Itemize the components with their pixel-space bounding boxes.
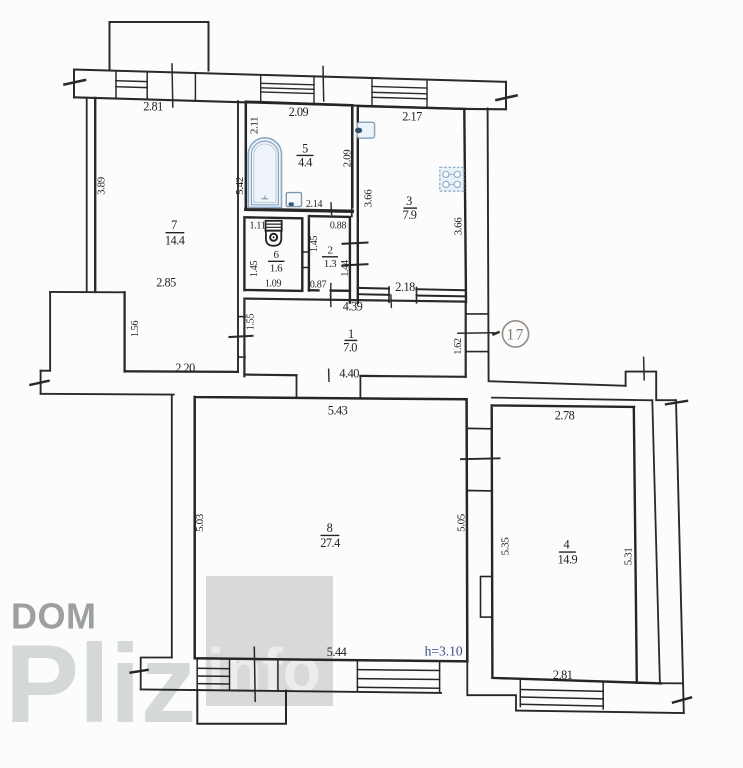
svg-text:14.4: 14.4 — [165, 233, 185, 247]
svg-text:4: 4 — [563, 538, 569, 552]
svg-text:7: 7 — [171, 218, 177, 232]
svg-text:14.9: 14.9 — [558, 553, 578, 567]
svg-text:3.66: 3.66 — [453, 217, 465, 236]
svg-text:4.4: 4.4 — [298, 156, 312, 170]
svg-text:2.17: 2.17 — [402, 109, 422, 123]
svg-text:1.44: 1.44 — [340, 260, 351, 277]
svg-text:7.0: 7.0 — [343, 340, 357, 354]
svg-text:5.42: 5.42 — [234, 177, 246, 195]
svg-text:0.87: 0.87 — [310, 280, 327, 291]
svg-text:0.88: 0.88 — [330, 220, 347, 231]
svg-text:2.09: 2.09 — [341, 149, 353, 168]
svg-text:1.45: 1.45 — [249, 261, 260, 278]
svg-text:6: 6 — [273, 249, 279, 261]
svg-text:3.66: 3.66 — [362, 189, 374, 208]
svg-text:h=3.10: h=3.10 — [425, 643, 463, 658]
svg-text:8: 8 — [327, 521, 333, 535]
svg-text:3.89: 3.89 — [95, 176, 107, 195]
svg-text:1.11: 1.11 — [250, 221, 266, 232]
svg-text:2.18: 2.18 — [395, 280, 415, 294]
svg-text:5.31: 5.31 — [623, 548, 635, 566]
svg-text:2.20: 2.20 — [175, 361, 195, 375]
svg-text:5.43: 5.43 — [328, 403, 348, 417]
svg-text:2: 2 — [327, 244, 332, 256]
svg-text:5.05: 5.05 — [456, 513, 468, 532]
svg-text:4.39: 4.39 — [343, 299, 363, 313]
svg-text:1.55: 1.55 — [245, 314, 256, 331]
svg-text:1.6: 1.6 — [270, 262, 283, 274]
svg-text:4.40: 4.40 — [339, 367, 359, 381]
svg-text:1.3: 1.3 — [324, 258, 337, 270]
svg-text:DOM: DOM — [11, 596, 97, 637]
svg-text:2.09: 2.09 — [289, 105, 309, 119]
svg-text:2.81: 2.81 — [553, 668, 573, 682]
svg-text:Pliz: Pliz — [5, 622, 196, 746]
svg-text:5: 5 — [302, 142, 308, 156]
svg-text:info: info — [207, 637, 321, 706]
svg-text:1.62: 1.62 — [453, 338, 464, 355]
svg-text:17: 17 — [507, 327, 526, 344]
svg-text:2.14: 2.14 — [306, 199, 323, 210]
svg-text:5.44: 5.44 — [327, 645, 347, 659]
svg-text:2.81: 2.81 — [143, 99, 163, 113]
svg-text:1: 1 — [348, 327, 354, 341]
svg-text:2.78: 2.78 — [555, 409, 575, 423]
svg-text:1.56: 1.56 — [130, 321, 141, 338]
svg-text:1.45: 1.45 — [309, 236, 320, 253]
svg-text:1.09: 1.09 — [265, 279, 282, 290]
svg-text:5.03: 5.03 — [194, 513, 206, 532]
svg-text:2.85: 2.85 — [156, 275, 176, 289]
svg-text:7.9: 7.9 — [403, 208, 417, 222]
svg-text:2.11: 2.11 — [248, 117, 260, 134]
svg-text:27.4: 27.4 — [320, 536, 340, 550]
svg-text:5.35: 5.35 — [500, 537, 512, 556]
svg-text:3: 3 — [406, 194, 412, 208]
